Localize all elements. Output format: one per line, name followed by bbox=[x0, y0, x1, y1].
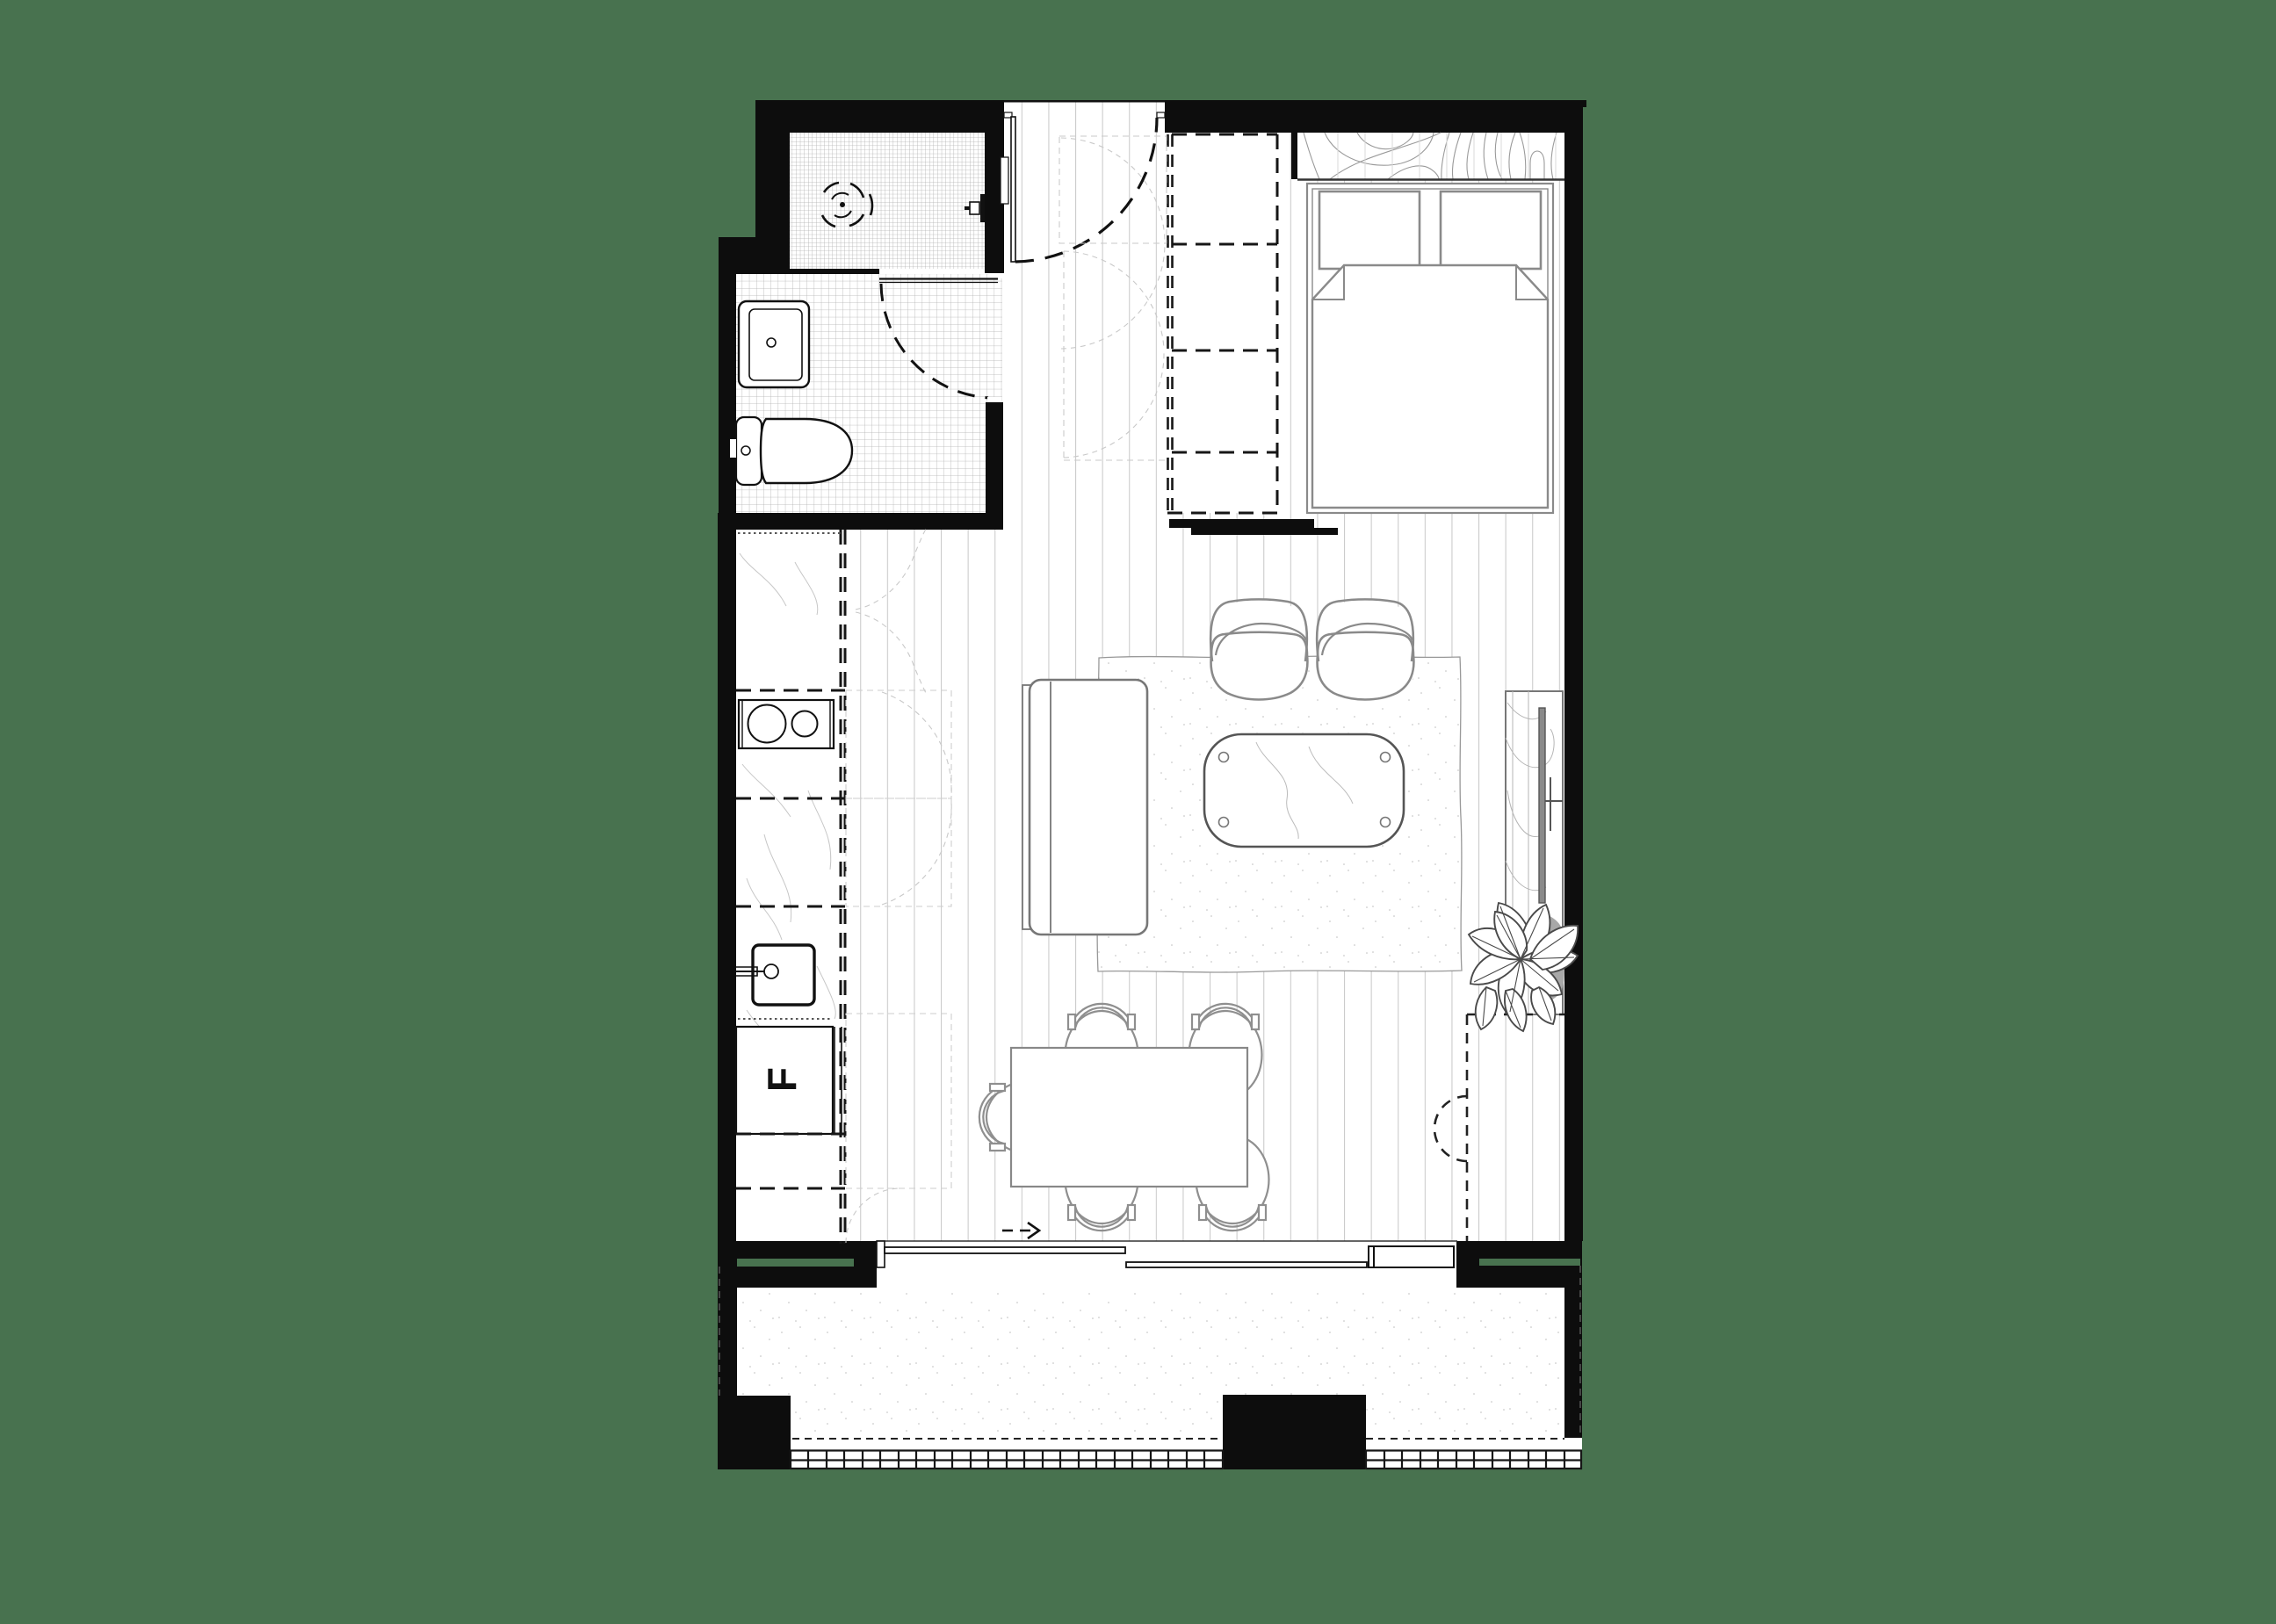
svg-text:F: F bbox=[759, 1067, 805, 1092]
